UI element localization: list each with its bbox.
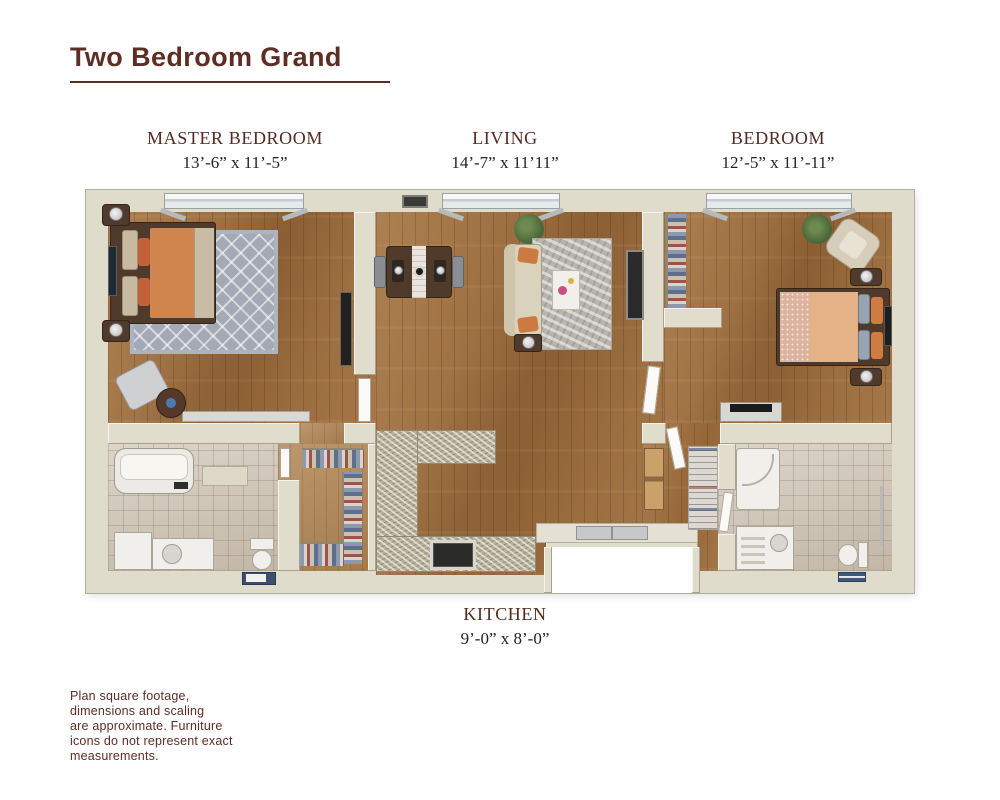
bedroom-name: BEDROOM <box>648 128 908 149</box>
closet-rod-right <box>342 472 362 564</box>
pantry-cabinet <box>644 448 664 510</box>
bedroom-wall-tv-icon <box>884 306 892 346</box>
label-master-bedroom: MASTER BEDROOM 13’-6” x 11’-5” <box>105 128 365 173</box>
page-title: Two Bedroom Grand <box>70 42 342 73</box>
bath2-towels <box>838 572 866 582</box>
living-window <box>442 193 560 209</box>
bedroom-orange-pillow-bottom <box>871 332 883 359</box>
bath2-sink-icon <box>770 534 788 552</box>
master-low-console <box>182 411 310 422</box>
master-bed-blanket <box>194 228 214 318</box>
wall-under-master-right <box>344 423 376 444</box>
closet-rod-bottom <box>300 542 344 566</box>
coffee-table-decor-pink <box>558 286 567 295</box>
wall-under-master-left <box>108 423 300 444</box>
air-vent-icon <box>402 195 428 208</box>
plate-left-icon <box>394 266 403 275</box>
master-table-bowl-icon <box>166 398 176 408</box>
centerpiece-icon <box>414 266 425 277</box>
title-underline <box>70 81 390 83</box>
master-wall-tv-icon <box>340 292 352 366</box>
floor-plan <box>86 190 914 593</box>
sofa-back <box>504 244 515 336</box>
dining-chair-left <box>374 256 386 288</box>
wall-hall-bath-upper <box>718 444 736 490</box>
bedroom-closet-rod <box>666 214 686 308</box>
entry-cutout <box>552 547 692 593</box>
wall-entry-notch-left <box>544 547 552 593</box>
master-vanity-sink-icon <box>162 544 182 564</box>
linen-shelves <box>688 446 718 530</box>
label-kitchen: KITCHEN 9’-0” x 8’-0” <box>375 604 635 649</box>
master-wall-art-icon <box>108 246 117 296</box>
master-pillow-bottom <box>122 276 138 316</box>
kitchen-range-icon <box>430 540 476 570</box>
bedroom-dimensions: 12’-5” x 11’-11” <box>648 153 908 173</box>
master-bath-door <box>280 448 290 478</box>
master-bedroom-window <box>164 193 304 209</box>
wall-hall-bath-lower <box>718 534 736 571</box>
kitchen-dimensions: 9’-0” x 8’-0” <box>375 629 635 649</box>
bedroom-lamp-bottom-icon <box>860 370 873 383</box>
floor-plan-page: { "title": { "text": "Two Bedroom Grand"… <box>0 0 1000 800</box>
sink-divider <box>611 527 613 539</box>
kitchen-name: KITCHEN <box>375 604 635 625</box>
plate-right-icon <box>436 266 445 275</box>
master-bath-mat <box>202 466 248 486</box>
bedroom-gray-pillow-top <box>858 294 870 324</box>
living-media-console <box>626 250 644 320</box>
master-accent-pillow-bottom <box>138 278 150 306</box>
bedroom-bed-blanket <box>780 292 810 362</box>
living-name: LIVING <box>375 128 635 149</box>
label-living: LIVING 14’-7” x 11’11” <box>375 128 635 173</box>
master-toilet-bowl-icon <box>252 550 272 570</box>
wall-under-bedroom-left <box>642 423 666 444</box>
master-doorway-threshold <box>300 423 344 444</box>
bedroom-orange-pillow-top <box>871 297 883 324</box>
wall-under-bedroom-right <box>720 423 892 444</box>
tub-faucet-icon <box>174 482 188 489</box>
master-bedroom-name: MASTER BEDROOM <box>105 128 365 149</box>
dining-chair-right <box>452 256 464 288</box>
living-dimensions: 14’-7” x 11’11” <box>375 153 635 173</box>
master-lamp-top-icon <box>109 207 123 221</box>
bath2-towel-shelf <box>741 532 765 564</box>
sofa-pillow-top <box>517 247 539 265</box>
dresser-tv-icon <box>730 404 772 412</box>
towel-bar-icon <box>880 486 883 546</box>
bath2-toilet-bowl-icon <box>838 544 858 566</box>
wall-entry-notch-right <box>692 547 700 593</box>
living-lamp-icon <box>522 336 535 349</box>
bedroom-window <box>706 193 852 209</box>
bath-storage-cabinet <box>114 532 152 570</box>
wall-closet-kitchen <box>368 444 376 571</box>
master-lamp-bottom-icon <box>109 323 123 337</box>
bedroom-gray-pillow-bottom <box>858 330 870 360</box>
wall-living-bedroom <box>642 212 664 362</box>
coffee-table-decor-yellow <box>568 278 574 284</box>
closet-rod-top <box>302 448 364 468</box>
wall-master-living <box>354 212 376 375</box>
master-bedroom-dimensions: 13’-6” x 11’-5” <box>105 153 365 173</box>
sofa-pillow-bottom <box>517 316 539 334</box>
wall-bedroom-closet-return <box>664 308 722 328</box>
bath2-toilet-tank <box>858 542 868 568</box>
master-pillow-top <box>122 230 138 270</box>
master-accent-pillow-top <box>138 238 150 266</box>
label-bedroom: BEDROOM 12’-5” x 11’-11” <box>648 128 908 173</box>
bedroom-lamp-top-icon <box>860 270 873 283</box>
master-toilet-tank <box>250 538 274 550</box>
disclaimer-text: Plan square footage, dimensions and scal… <box>70 689 320 764</box>
master-door <box>358 378 371 422</box>
wall-bath-closet-divider <box>278 480 300 571</box>
folded-towel-icon <box>246 574 266 582</box>
bathtub-basin <box>120 454 188 480</box>
